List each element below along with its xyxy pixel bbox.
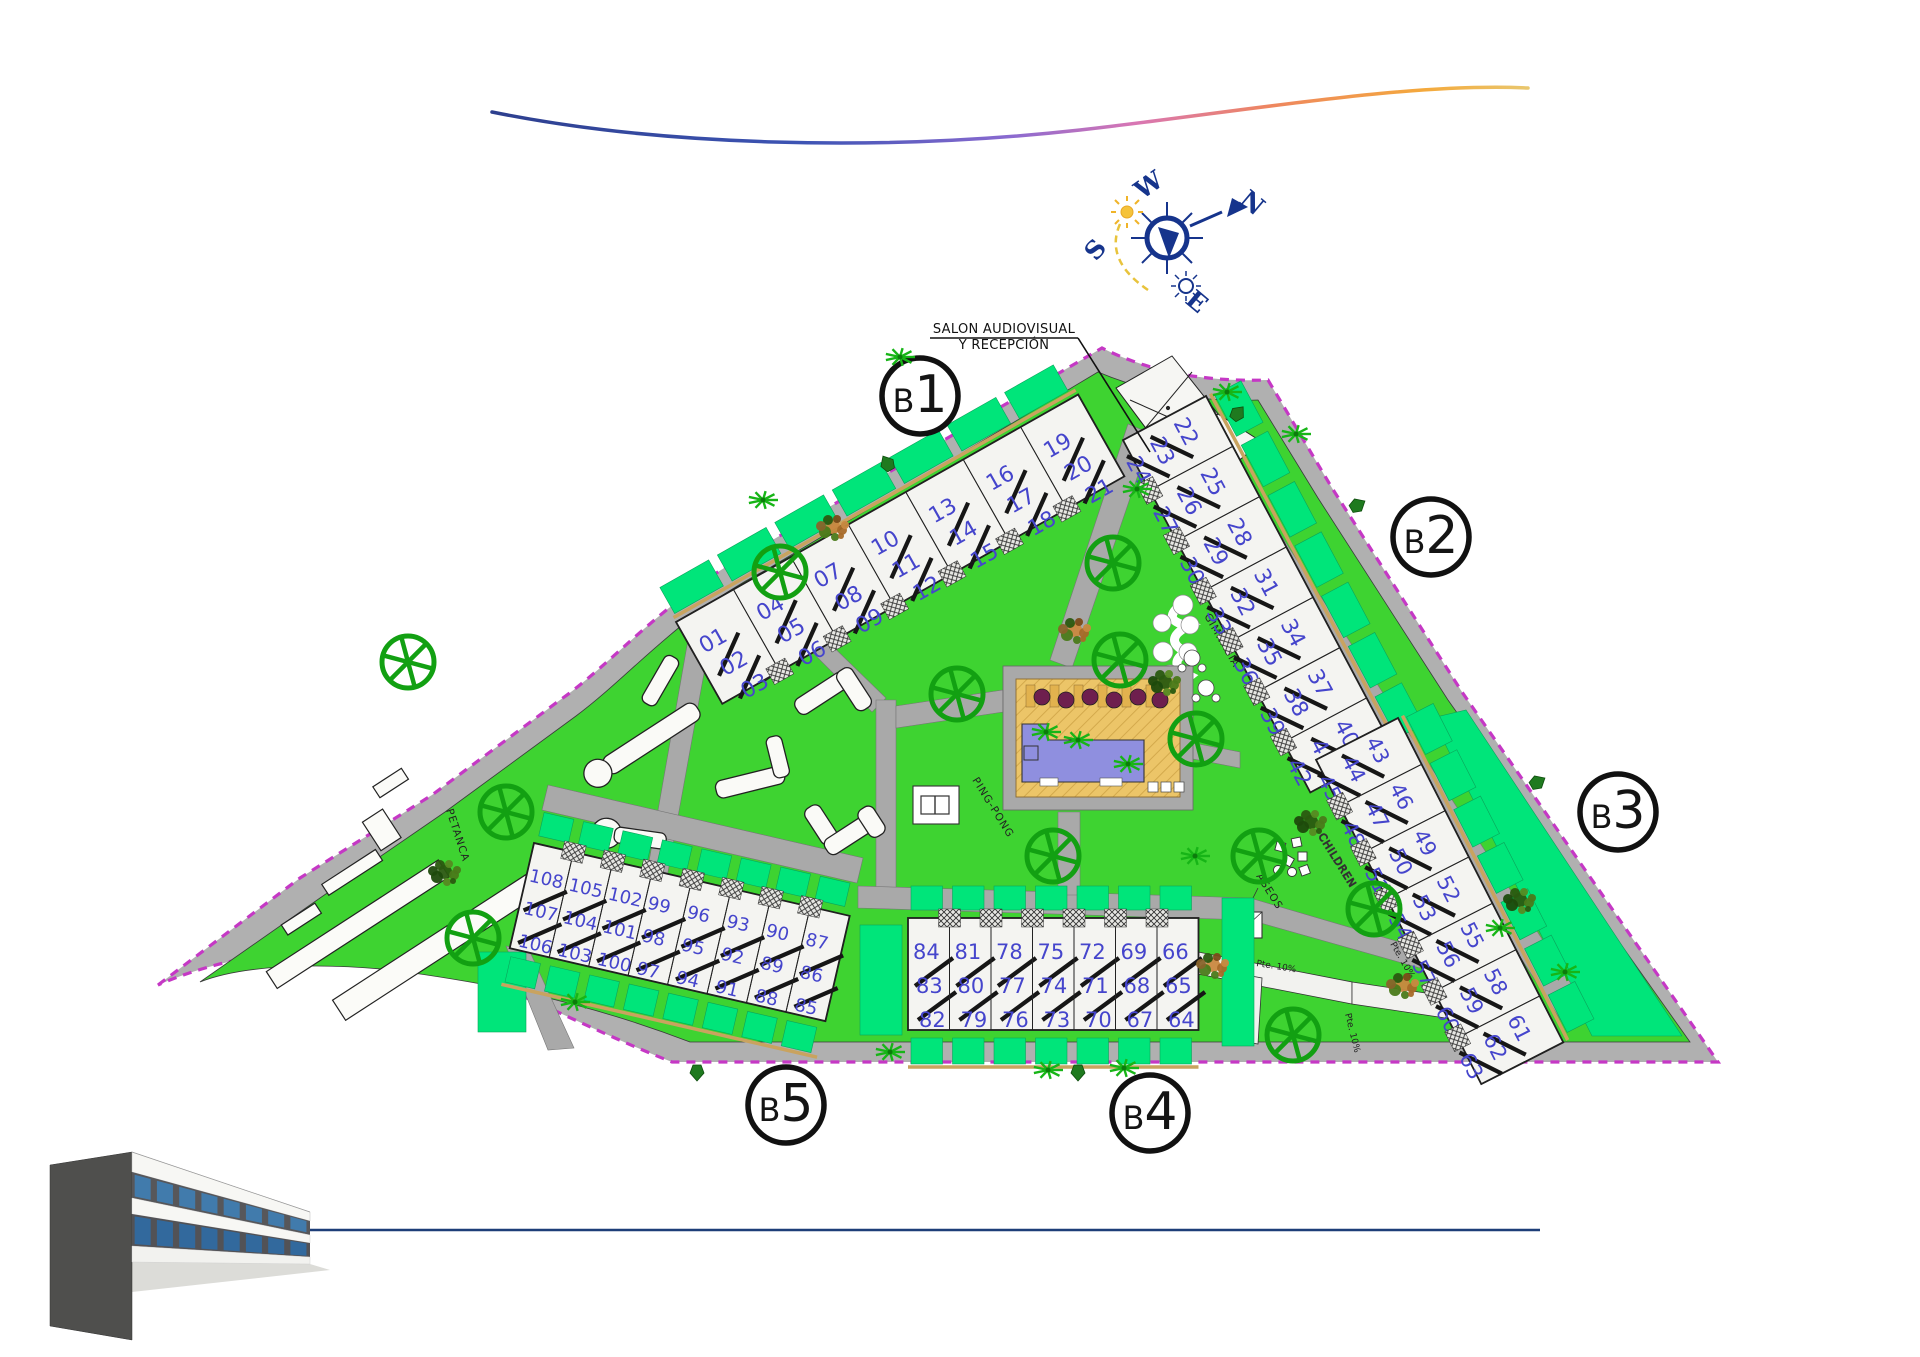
unit-number: 70 — [1085, 1008, 1112, 1032]
sun-path-arc — [1116, 224, 1148, 290]
garden-strip — [1160, 1038, 1192, 1064]
block-label-b5: B5 — [748, 1067, 824, 1143]
compass-n: N — [1234, 184, 1270, 221]
unit-number: 65 — [1165, 974, 1192, 998]
reception-label-line1: SALON AUDIOVISUAL — [933, 322, 1076, 337]
unit-number: 82 — [919, 1008, 946, 1032]
garden-strip — [953, 1038, 985, 1064]
garden-strip — [1119, 1038, 1151, 1064]
garden-strip — [1077, 886, 1109, 910]
unit-number: 69 — [1121, 940, 1148, 964]
garden-strip — [1119, 886, 1151, 910]
garden-strip — [953, 886, 985, 910]
unit-number: 66 — [1162, 940, 1189, 964]
star-flower-icon — [1171, 271, 1201, 301]
unit-number: 81 — [955, 940, 982, 964]
garden-strip — [1077, 1038, 1109, 1064]
entrance-arrow-icon — [1071, 1065, 1085, 1081]
render-window — [246, 1234, 262, 1253]
block-label-b3: B3 — [1580, 774, 1656, 850]
render-window — [268, 1237, 284, 1254]
compass-w: W — [1128, 165, 1169, 206]
unit-number: 77 — [999, 974, 1026, 998]
garden-patch — [1222, 898, 1254, 1046]
entrance-arrow-icon — [1348, 495, 1369, 515]
palm-icon — [749, 491, 778, 509]
site-plan-page: Pte. 10% Pte. 10% Pte. 10% PETANCA — [0, 0, 1920, 1357]
stair-icon — [980, 909, 1002, 927]
unit-number: 68 — [1124, 974, 1151, 998]
stair-icon — [1146, 909, 1168, 927]
render-window — [201, 1227, 217, 1250]
jacuzzi — [1024, 746, 1038, 760]
block-label-b2: B2 — [1393, 499, 1469, 575]
garden-strip — [1036, 886, 1068, 910]
unit-number: 80 — [958, 974, 985, 998]
render-window — [179, 1223, 195, 1248]
render-window — [157, 1220, 173, 1247]
reception-label-line2: Y RECEPCIÓN — [958, 337, 1050, 353]
unit-number: 76 — [1002, 1008, 1029, 1032]
garden-strip — [1036, 1038, 1068, 1064]
unit-number: 74 — [1041, 974, 1068, 998]
unit-number: 83 — [916, 974, 943, 998]
deck-tables — [1148, 782, 1184, 792]
garden-strip — [911, 1038, 943, 1064]
unit-number: 64 — [1168, 1008, 1195, 1032]
garden-strip — [1160, 886, 1192, 910]
block-label-b1: B1 — [882, 358, 958, 434]
block-label-b4: B4 — [1112, 1075, 1188, 1151]
unit-number: 78 — [996, 940, 1023, 964]
decorative-swoosh — [492, 87, 1528, 143]
stair-icon — [939, 909, 961, 927]
garden-strip — [994, 886, 1026, 910]
render-window — [224, 1230, 240, 1251]
sun-icon — [1111, 196, 1143, 228]
unit-number: 73 — [1044, 1008, 1071, 1032]
unit-number: 71 — [1082, 974, 1109, 998]
garden-strip — [994, 1038, 1026, 1064]
compass-rose: N W S E — [1078, 165, 1270, 319]
stair-icon — [1063, 909, 1085, 927]
unit-number: 84 — [913, 940, 940, 964]
stair-icon — [1022, 909, 1044, 927]
garden-patch — [860, 925, 902, 1035]
entrance-arrow-icon — [690, 1065, 704, 1081]
garden-strip — [911, 886, 943, 910]
unit-number: 75 — [1038, 940, 1065, 964]
site-plan-svg: Pte. 10% Pte. 10% Pte. 10% PETANCA — [0, 0, 1920, 1357]
compass-s: S — [1078, 233, 1112, 265]
render-window — [135, 1216, 151, 1245]
tree-icon — [382, 636, 434, 688]
building-render — [50, 1152, 330, 1340]
unit-number: 67 — [1127, 1008, 1154, 1032]
render-window — [290, 1241, 306, 1256]
site-plan: Pte. 10% Pte. 10% Pte. 10% PETANCA — [158, 348, 1718, 1151]
unit-number: 72 — [1079, 940, 1106, 964]
stair-icon — [1105, 909, 1127, 927]
render-window — [135, 1175, 151, 1200]
unit-number: 79 — [961, 1008, 988, 1032]
